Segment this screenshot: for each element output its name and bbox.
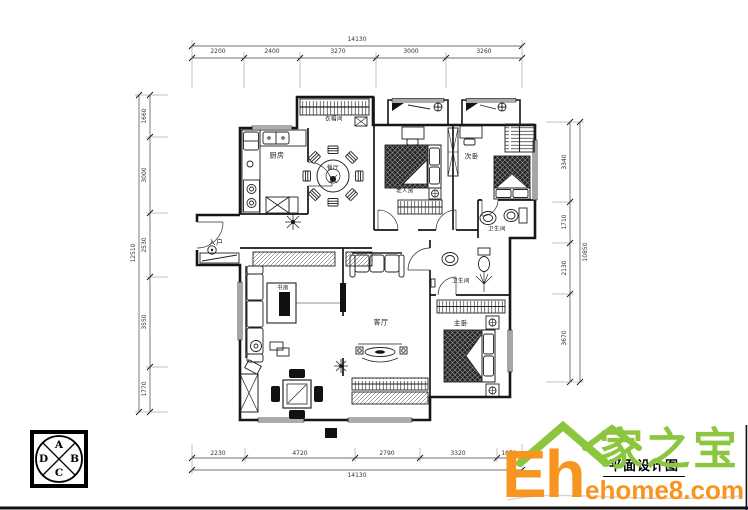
room-label-bath-1: 卫生间 xyxy=(488,227,506,233)
dim-left-seg: 1770 xyxy=(142,381,148,396)
dim-left-seg: 2530 xyxy=(142,237,148,252)
dim-top-seg: 3000 xyxy=(403,49,418,55)
room-label-cloakroom: 衣帽间 xyxy=(325,117,343,123)
bathroom-1-fixtures xyxy=(480,208,527,225)
dim-top-seg: 3270 xyxy=(330,49,345,55)
dim-left-seg: 3000 xyxy=(142,167,148,182)
room-label-master-bedroom: 主卧 xyxy=(454,321,469,328)
dim-left-seg: 3550 xyxy=(142,314,148,329)
compass-letter-c: C xyxy=(55,468,63,479)
room-label-second-bedroom: 次卧 xyxy=(465,154,480,161)
second-bedroom-furniture xyxy=(448,103,534,199)
dim-right-seg: 3670 xyxy=(562,330,568,345)
dim-right-seg: 1710 xyxy=(562,214,568,229)
logo-brand-short: Eh xyxy=(502,441,584,508)
compass-letter-b: B xyxy=(70,454,79,465)
study-furniture xyxy=(245,252,372,374)
dim-bottom-seg: 2230 xyxy=(210,451,225,457)
logo-brand-cn: 家之宝 xyxy=(599,428,740,472)
floor-plan-sheet: 厨房 餐厅 衣帽间 老人房 次卧 卫生间 入户 书房 客厅 卫生间 主卧 141… xyxy=(0,0,748,510)
dim-bottom-total: 14130 xyxy=(347,473,366,479)
kitchen-fixtures xyxy=(242,130,306,214)
plant-icon xyxy=(285,214,301,230)
dim-left-seg: 1660 xyxy=(142,108,148,123)
room-label-entry: 入户 xyxy=(209,240,224,247)
dim-top-seg: 2200 xyxy=(210,49,225,55)
dim-right-seg: 2130 xyxy=(562,260,568,275)
room-label-study: 书房 xyxy=(277,286,289,292)
plant-icon xyxy=(334,359,348,373)
dim-bottom-seg: 2790 xyxy=(379,451,394,457)
dim-bottom-seg: 4720 xyxy=(292,451,307,457)
compass-letter-d: D xyxy=(39,454,48,465)
bathroom-2-fixtures xyxy=(431,248,492,292)
dim-left-total: 12510 xyxy=(131,243,137,262)
logo-domain-text: ehome8.com xyxy=(585,477,744,503)
elder-bedroom-furniture xyxy=(385,103,442,214)
room-label-bath-2: 卫生间 xyxy=(452,279,470,285)
dim-top-total: 14130 xyxy=(347,37,366,43)
living-room-furniture xyxy=(334,253,428,404)
dim-right-total: 10850 xyxy=(583,242,589,261)
compass-letter-a: A xyxy=(55,440,63,451)
leisure-area-furniture xyxy=(240,369,337,438)
room-label-elder-bedroom: 老人房 xyxy=(396,189,414,195)
room-label-dining: 餐厅 xyxy=(327,166,339,172)
room-label-kitchen: 厨房 xyxy=(270,153,285,160)
dim-top-seg: 2400 xyxy=(264,49,279,55)
dim-top-seg: 3260 xyxy=(476,49,491,55)
dining-table xyxy=(303,146,363,206)
dim-bottom-seg: 3320 xyxy=(450,451,465,457)
room-label-living: 客厅 xyxy=(374,320,389,327)
dim-right-seg: 3340 xyxy=(562,154,568,169)
shower-icon xyxy=(476,272,492,292)
master-bedroom-furniture xyxy=(437,300,505,397)
